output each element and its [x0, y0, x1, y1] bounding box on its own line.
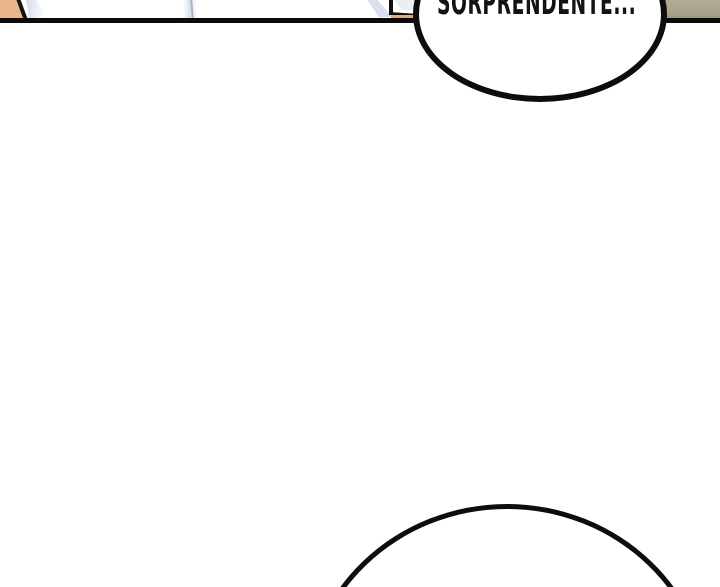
speech-bubble-bottom [303, 504, 711, 587]
speech-bubble-top: SORPRENDENTE... [413, 0, 667, 102]
manga-page: SORPRENDENTE... [0, 0, 720, 587]
speech-bubble-top-text: SORPRENDENTE... [437, 0, 636, 20]
clothing-shadow [364, 0, 392, 17]
clothing-shadow [26, 0, 48, 19]
